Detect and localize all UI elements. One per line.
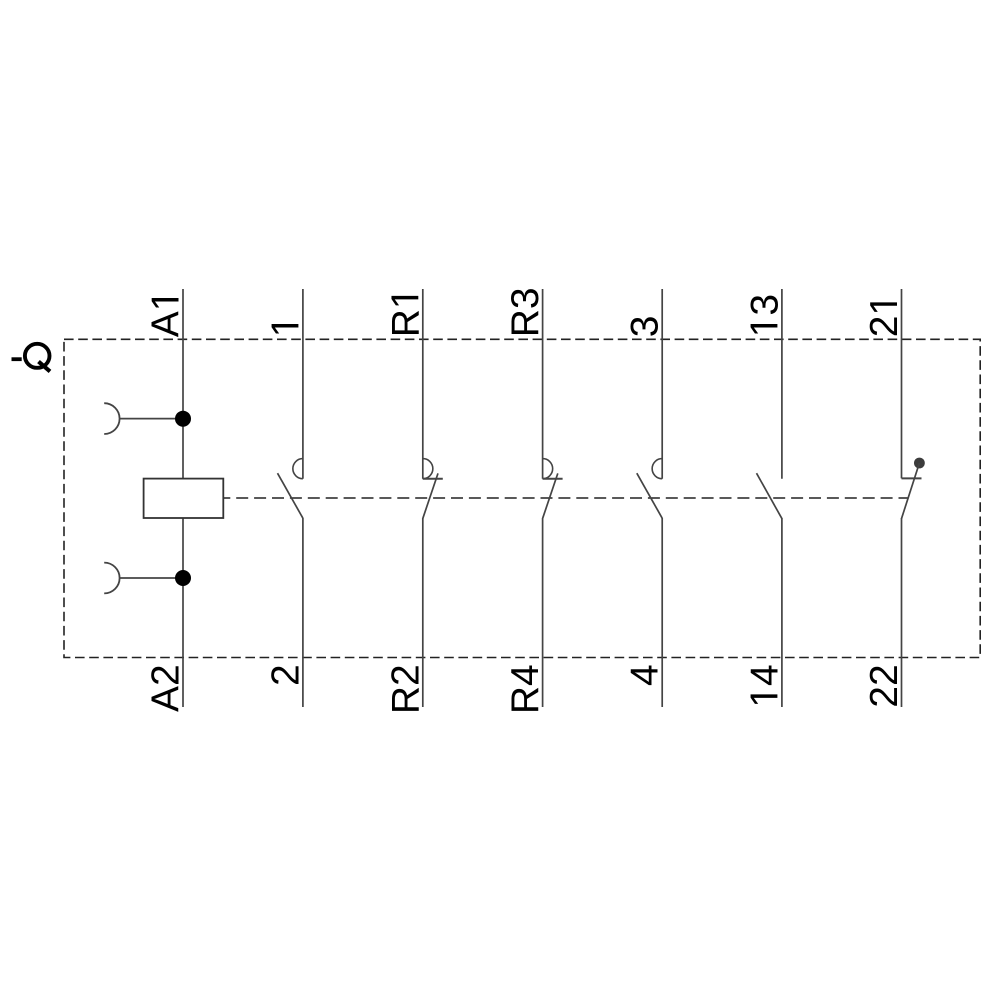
svg-text:3: 3 [624, 316, 667, 338]
svg-text:R4: R4 [504, 664, 547, 714]
svg-text:4: 4 [624, 664, 667, 686]
svg-text:22: 22 [863, 664, 906, 707]
svg-text:3: 3 [743, 294, 786, 316]
svg-text:4: 4 [743, 664, 786, 686]
svg-text:R2: R2 [384, 664, 427, 714]
svg-text:R: R [384, 309, 427, 337]
svg-text:A: A [145, 311, 188, 337]
svg-text:2: 2 [863, 316, 906, 338]
svg-text:2: 2 [264, 664, 307, 686]
svg-text:R3: R3 [504, 287, 547, 337]
svg-text:A2: A2 [145, 664, 188, 712]
